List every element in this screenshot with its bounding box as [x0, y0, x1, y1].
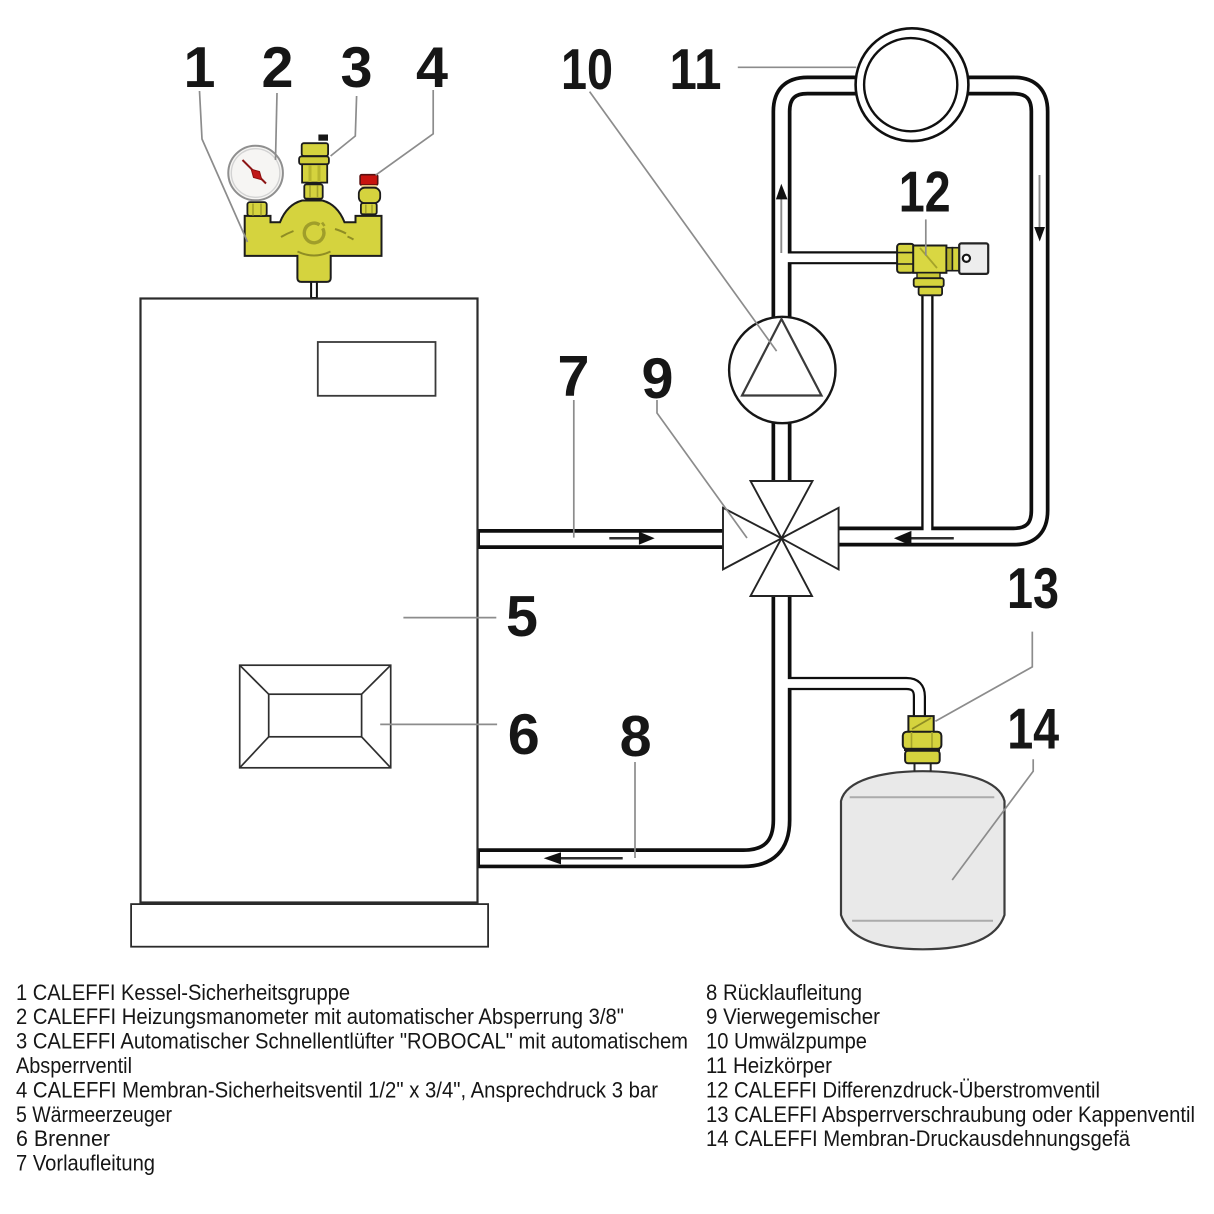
svg-text:7: 7: [558, 345, 590, 409]
svg-text:5: 5: [506, 585, 538, 649]
svg-text:4: 4: [416, 36, 448, 100]
svg-text:8 Rücklaufleitung: 8 Rücklaufleitung: [706, 980, 862, 1005]
svg-text:1 CALEFFI Kessel-Sicherheitsgr: 1 CALEFFI Kessel-Sicherheitsgruppe: [16, 980, 350, 1005]
svg-text:2 CALEFFI Heizungsmanometer mi: 2 CALEFFI Heizungsmanometer mit automati…: [16, 1004, 624, 1029]
svg-text:2: 2: [262, 36, 294, 100]
svg-text:13 CALEFFI Absperrverschraubun: 13 CALEFFI Absperrverschraubung oder Kap…: [706, 1102, 1195, 1127]
svg-text:3: 3: [341, 36, 373, 100]
svg-text:14 CALEFFI Membran-Druckausdeh: 14 CALEFFI Membran-Druckausdehnungsgefä: [706, 1126, 1130, 1151]
svg-text:10: 10: [561, 38, 613, 102]
svg-text:8: 8: [620, 705, 652, 769]
svg-text:9: 9: [642, 347, 674, 411]
svg-text:3 CALEFFI Automatischer Schnel: 3 CALEFFI Automatischer Schnellentlüfter…: [16, 1029, 688, 1054]
svg-text:Absperrventil: Absperrventil: [16, 1053, 132, 1078]
svg-text:7 Vorlaufleitung: 7 Vorlaufleitung: [16, 1151, 155, 1176]
svg-text:11: 11: [670, 38, 722, 102]
svg-text:14: 14: [1007, 697, 1059, 761]
svg-text:10 Umwälzpumpe: 10 Umwälzpumpe: [706, 1029, 867, 1054]
svg-text:13: 13: [1007, 557, 1059, 621]
svg-text:12 CALEFFI Differenzdruck-Über: 12 CALEFFI Differenzdruck-Überstromventi…: [706, 1077, 1100, 1102]
svg-text:1: 1: [184, 36, 216, 100]
svg-text:5 Wärmeerzeuger: 5 Wärmeerzeuger: [16, 1102, 172, 1127]
svg-text:9 Vierwegemischer: 9 Vierwegemischer: [706, 1004, 880, 1029]
svg-text:4 CALEFFI Membran-Sicherheitsv: 4 CALEFFI Membran-Sicherheitsventil 1/2"…: [16, 1077, 658, 1102]
svg-text:6 Brenner: 6 Brenner: [16, 1126, 110, 1151]
svg-text:11 Heizkörper: 11 Heizkörper: [706, 1053, 832, 1078]
svg-text:12: 12: [899, 161, 951, 225]
svg-text:6: 6: [508, 703, 540, 767]
